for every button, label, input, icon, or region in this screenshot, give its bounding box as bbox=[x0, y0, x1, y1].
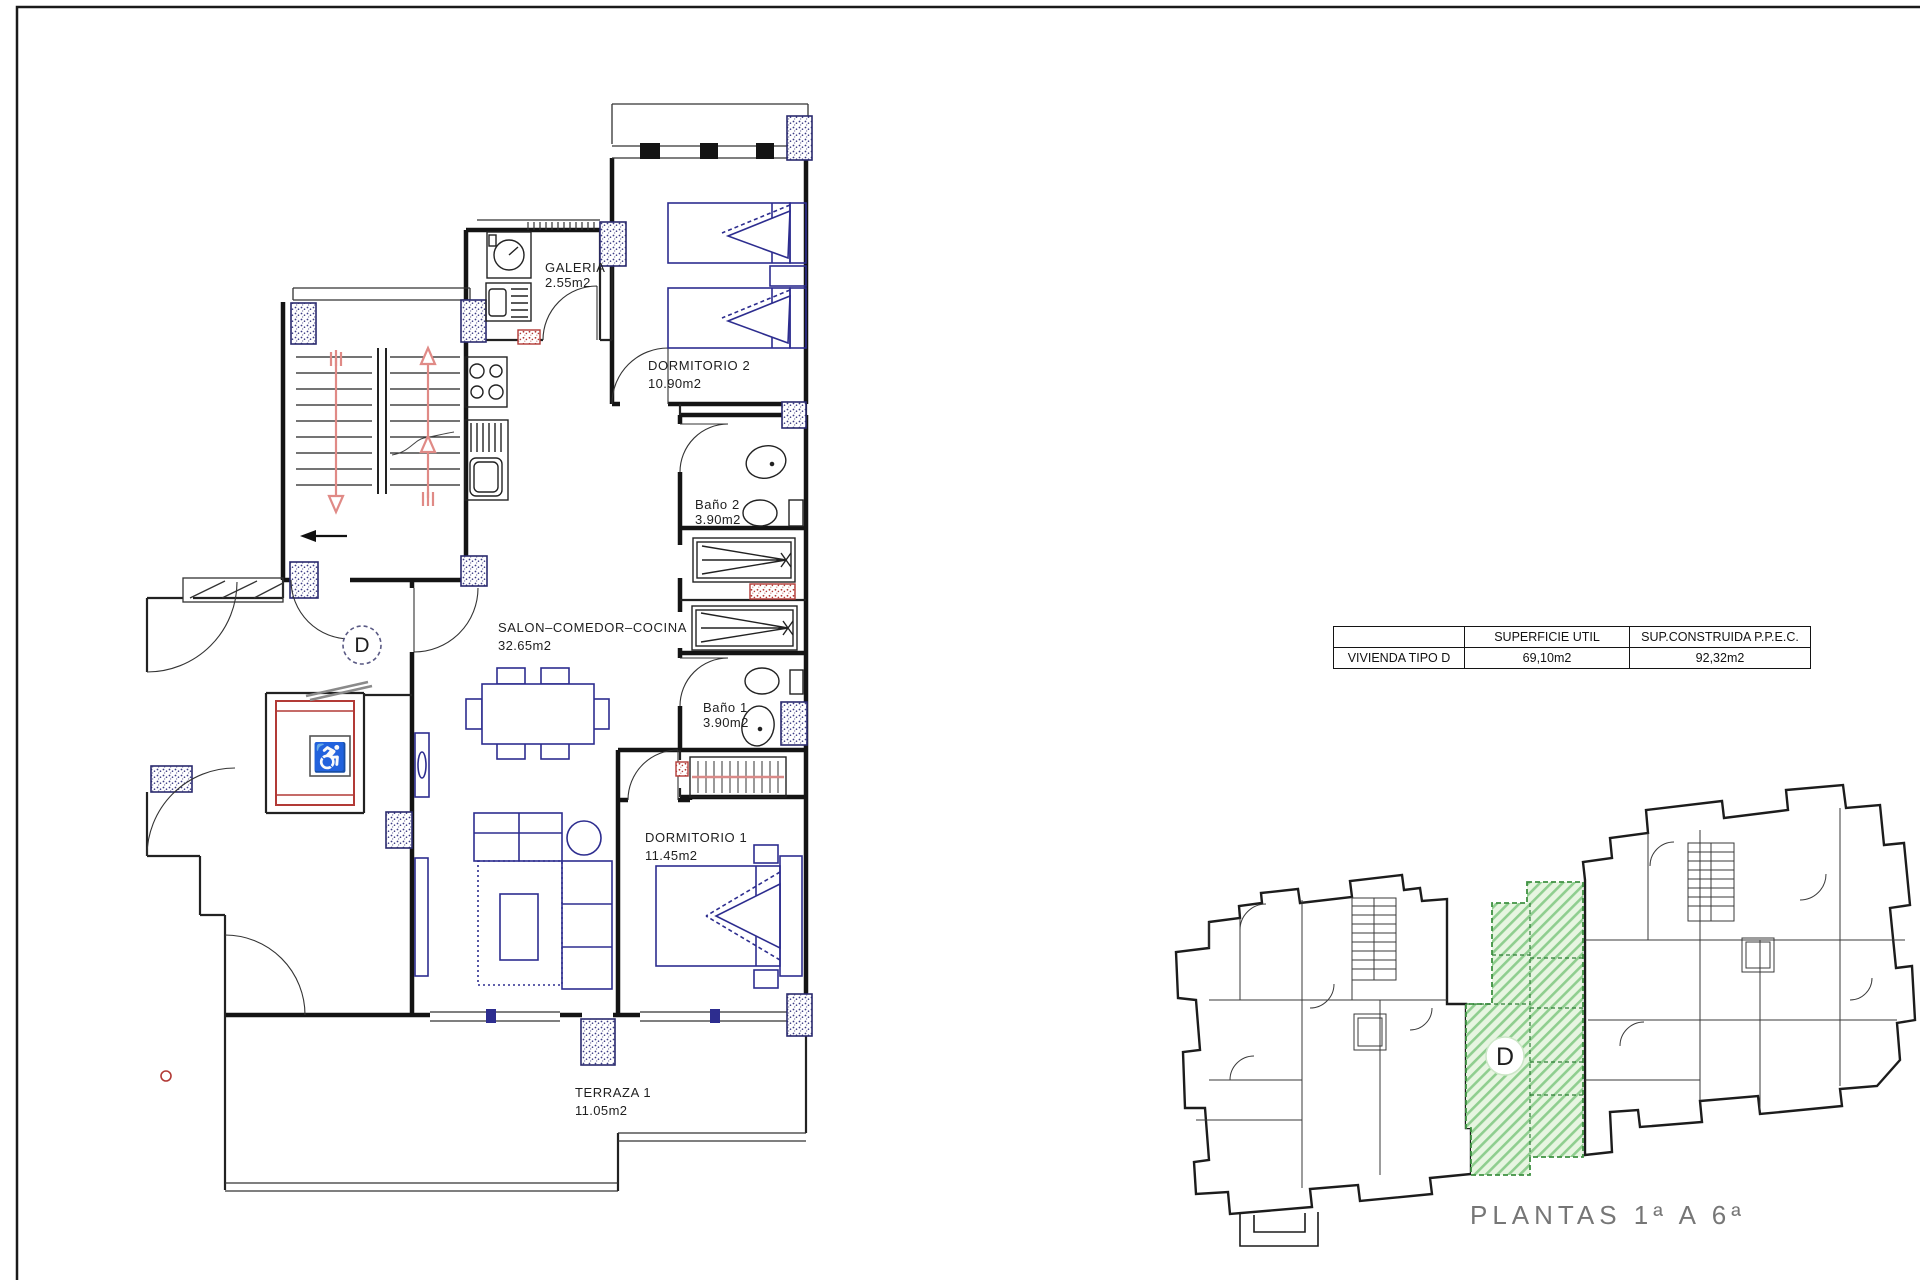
label-bano2-area: 3.90m2 bbox=[695, 512, 741, 527]
label-galeria-area: 2.55m2 bbox=[545, 275, 591, 290]
elevator: ♿ bbox=[276, 682, 372, 805]
area-summary-table: SUPERFICIE UTIL SUP.CONSTRUIDA P.P.E.C. … bbox=[1333, 626, 1811, 669]
label-terraza-area: 11.05m2 bbox=[575, 1103, 627, 1118]
label-terraza: TERRAZA 1 bbox=[575, 1085, 651, 1100]
keyplan-right-wing bbox=[1583, 785, 1915, 1155]
staircase bbox=[296, 348, 460, 542]
label-galeria: GALERIA bbox=[545, 260, 606, 275]
label-bano1-area: 3.90m2 bbox=[703, 715, 749, 730]
main-floor-plan: ♿ D bbox=[147, 104, 812, 1191]
drawing-sheet: ♿ D bbox=[0, 0, 1920, 1280]
label-dormitorio1-area: 11.45m2 bbox=[645, 848, 697, 863]
unit-letter-circle: D bbox=[343, 626, 381, 664]
header-sup-construida: SUP.CONSTRUIDA P.P.E.C. bbox=[1630, 627, 1811, 648]
keyplan-left-wing bbox=[1176, 875, 1471, 1214]
label-dormitorio1: DORMITORIO 1 bbox=[645, 830, 747, 845]
keyplan-caption: PLANTAS 1ª A 6ª bbox=[1470, 1200, 1790, 1231]
sofa-group bbox=[415, 733, 612, 989]
beds-dormitorio2 bbox=[668, 203, 806, 348]
kitchen-fixtures bbox=[465, 232, 540, 500]
keyplan-unit-letter: D bbox=[1496, 1043, 1514, 1071]
bed-dormitorio1 bbox=[656, 845, 802, 988]
label-dormitorio2-area: 10.90m2 bbox=[648, 376, 701, 391]
key-plan: D bbox=[1176, 785, 1915, 1246]
door-arcs bbox=[147, 286, 728, 1015]
wheelchair-icon: ♿ bbox=[313, 741, 348, 774]
label-bano1: Baño 1 bbox=[703, 700, 748, 715]
header-superficie-util: SUPERFICIE UTIL bbox=[1465, 627, 1630, 648]
keyplan-unit-d: D bbox=[1466, 882, 1583, 1175]
cell-vivienda-tipo: VIVIENDA TIPO D bbox=[1334, 648, 1465, 669]
cell-sup-construida-value: 92,32m2 bbox=[1630, 648, 1811, 669]
windows bbox=[183, 104, 808, 1191]
label-salon-area: 32.65m2 bbox=[498, 638, 551, 653]
label-bano2: Baño 2 bbox=[695, 497, 740, 512]
keyplan-appendix bbox=[1240, 1212, 1318, 1246]
label-salon: SALON–COMEDOR–COCINA bbox=[498, 620, 687, 635]
closet bbox=[676, 757, 786, 797]
unit-d-highlight bbox=[1466, 882, 1583, 1175]
label-dormitorio2: DORMITORIO 2 bbox=[648, 358, 750, 373]
header-empty-cell bbox=[1334, 627, 1465, 648]
dining-set bbox=[466, 668, 609, 759]
entry-arrow bbox=[300, 530, 316, 542]
table-data-row: VIVIENDA TIPO D 69,10m2 92,32m2 bbox=[1334, 648, 1811, 669]
table-header-row: SUPERFICIE UTIL SUP.CONSTRUIDA P.P.E.C. bbox=[1334, 627, 1811, 648]
elevator-door-mark bbox=[306, 682, 372, 700]
drain-mark bbox=[161, 1071, 171, 1081]
cell-superficie-util-value: 69,10m2 bbox=[1465, 648, 1630, 669]
unit-letter: D bbox=[354, 634, 369, 657]
